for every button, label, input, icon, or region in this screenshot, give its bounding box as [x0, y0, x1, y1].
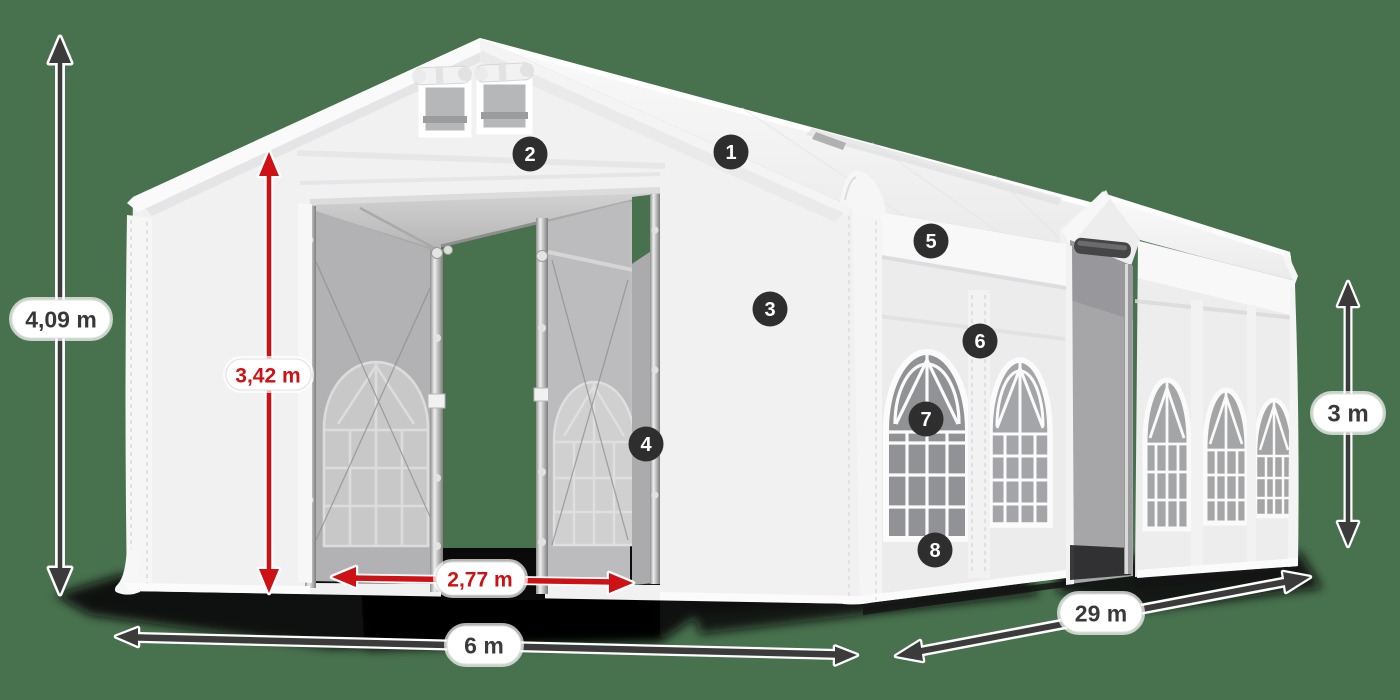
svg-text:3: 3	[764, 299, 775, 321]
svg-text:5: 5	[925, 231, 936, 253]
svg-text:1: 1	[725, 142, 736, 164]
svg-text:29 m: 29 m	[1075, 600, 1127, 626]
svg-text:4,09 m: 4,09 m	[25, 306, 97, 332]
svg-text:2,77 m: 2,77 m	[447, 569, 512, 592]
svg-text:2: 2	[524, 144, 535, 166]
svg-text:6: 6	[974, 331, 985, 353]
svg-text:7: 7	[920, 409, 931, 431]
svg-text:8: 8	[929, 540, 940, 562]
svg-text:3,42 m: 3,42 m	[235, 365, 300, 388]
svg-text:6 m: 6 m	[464, 632, 504, 658]
svg-text:3 m: 3 m	[1327, 401, 1368, 428]
svg-text:4: 4	[640, 434, 652, 456]
